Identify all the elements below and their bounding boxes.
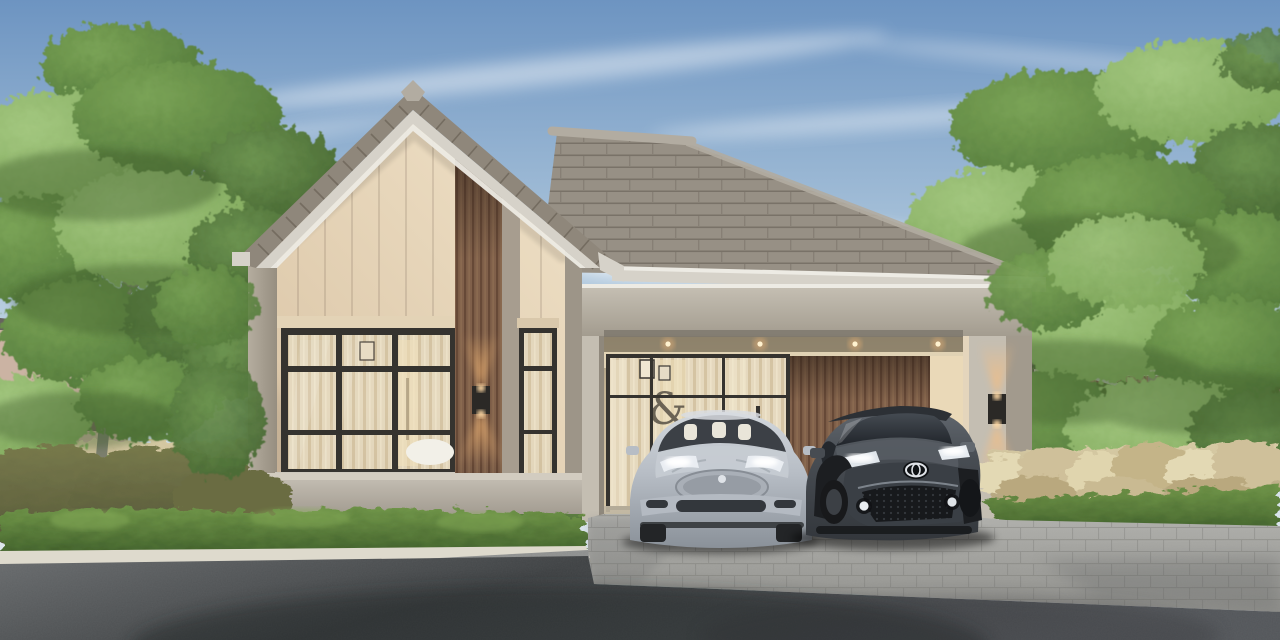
interior-picture-frame <box>360 342 374 360</box>
carport-left-post <box>582 336 604 522</box>
tesla-roof-highlight <box>681 410 761 420</box>
tesla-intake <box>676 500 766 512</box>
tesla-tire-left <box>640 524 666 542</box>
toyota-foglight-left <box>859 501 868 510</box>
interior-sofa <box>406 439 454 465</box>
window-header-trim <box>277 316 457 328</box>
column-side-return <box>502 188 520 514</box>
toyota-badge <box>903 461 929 479</box>
toyota-grille <box>862 485 956 522</box>
base-molding <box>248 473 582 480</box>
tesla-mirror-left <box>626 446 639 455</box>
narrow-window <box>517 318 559 478</box>
tesla-interior-seats <box>684 422 751 440</box>
carport-band-underside <box>604 330 963 337</box>
toyota-mirror-left <box>810 448 825 458</box>
wood-slat-column <box>455 150 504 514</box>
carport-ceiling-shadow <box>604 336 963 354</box>
tesla-badge <box>718 475 726 483</box>
carport-band <box>582 288 1032 336</box>
picture-window <box>275 328 461 485</box>
toyota-foglight-right <box>947 497 956 506</box>
architectural-rendering: & <box>0 0 1280 640</box>
eave-return-left <box>232 252 250 266</box>
toyota-wheel-right <box>959 479 981 517</box>
